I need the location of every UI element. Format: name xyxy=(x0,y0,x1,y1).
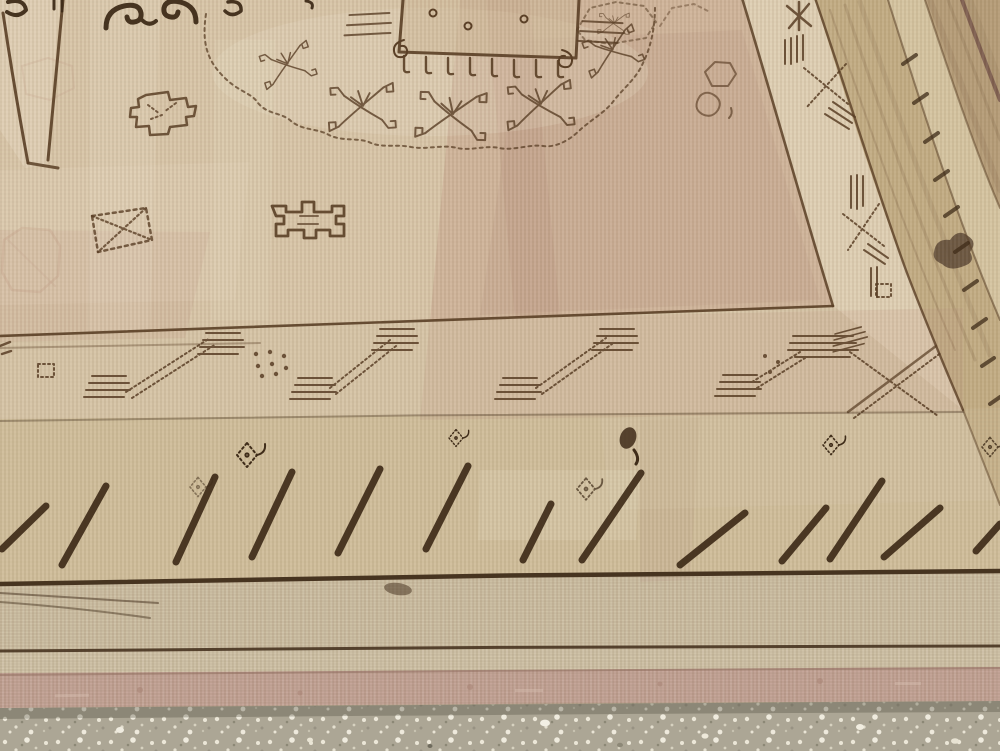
rug-photo-canvas xyxy=(0,0,1000,751)
weft-texture xyxy=(0,571,1000,708)
rug-photograph xyxy=(0,0,1000,751)
